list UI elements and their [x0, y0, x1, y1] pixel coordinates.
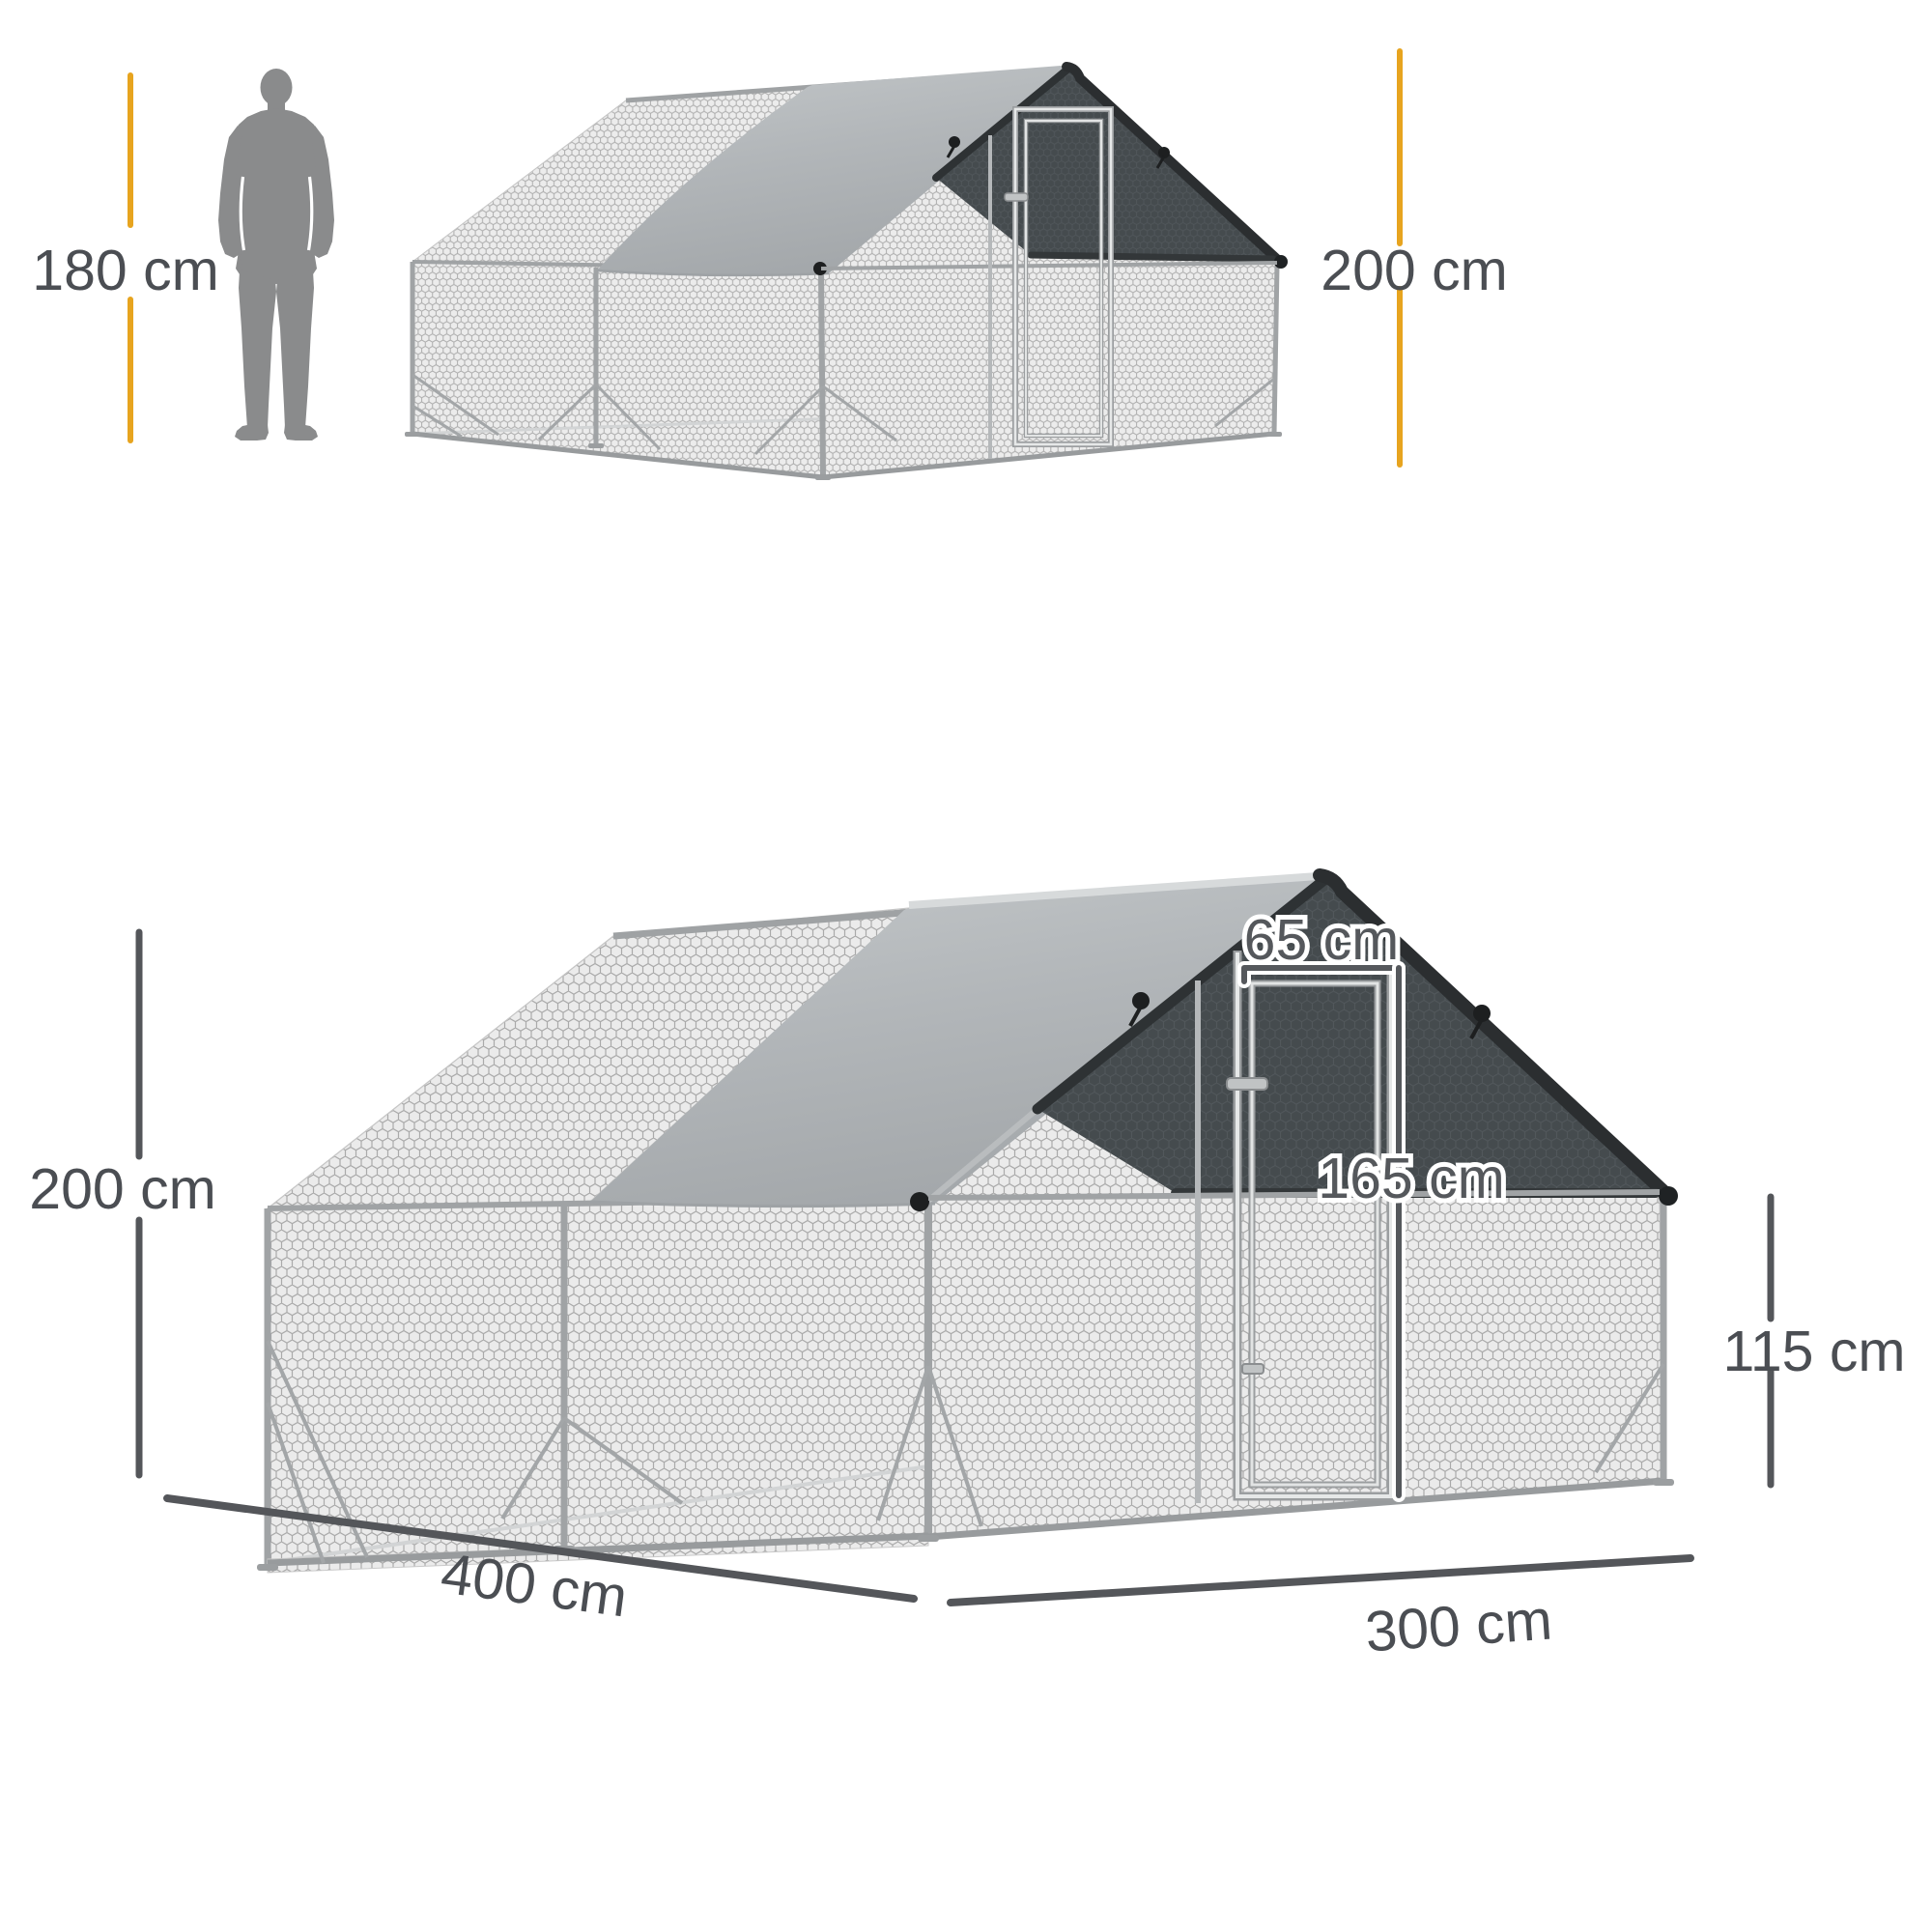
- svg-text:115 cm: 115 cm: [1722, 1320, 1905, 1383]
- svg-text:180 cm: 180 cm: [32, 239, 218, 302]
- svg-text:300 cm: 300 cm: [1363, 1587, 1554, 1663]
- svg-text:65 cm: 65 cm: [1244, 908, 1400, 972]
- svg-text:200 cm: 200 cm: [29, 1157, 215, 1221]
- svg-text:165 cm: 165 cm: [1318, 1147, 1504, 1210]
- svg-text:200 cm: 200 cm: [1321, 239, 1507, 302]
